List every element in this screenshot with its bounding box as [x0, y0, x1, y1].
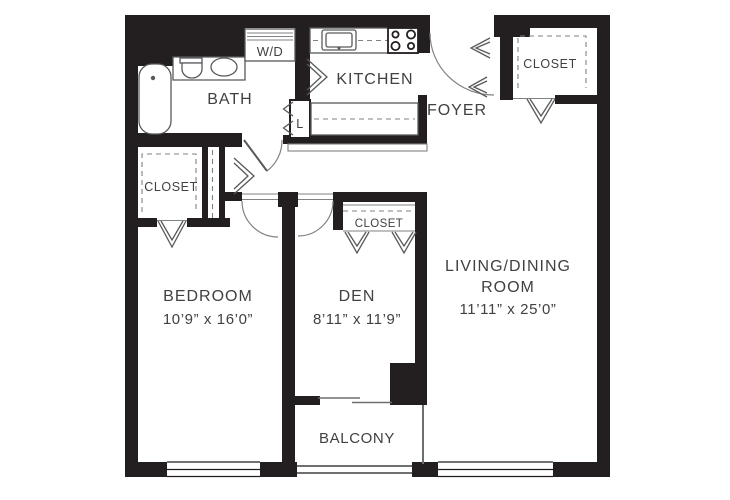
hall-closet-label: CLOSET: [144, 180, 198, 194]
living-dining-label-line1: LIVING/DINING: [445, 258, 571, 275]
linen-label: L: [296, 117, 304, 131]
kitchen-label: KITCHEN: [336, 71, 413, 88]
den-dimensions: 8’11” x 11’9”: [313, 311, 401, 328]
foyer-label: FOYER: [427, 102, 487, 119]
living-room-window: [438, 461, 553, 477]
balcony-label: BALCONY: [319, 430, 395, 447]
living-dining-label-line2: ROOM: [481, 279, 535, 296]
floor-plan: BATH W/D L KITCHEN FOYER CLOSET CLOSET C…: [0, 0, 730, 500]
washer-dryer-label: W/D: [257, 44, 283, 59]
bath-label: BATH: [207, 91, 252, 108]
bathtub-icon: [139, 64, 171, 134]
living-dining-dimensions: 11’11” x 25’0”: [459, 301, 556, 318]
stove-icon: [388, 28, 418, 53]
den-closet-label: CLOSET: [355, 218, 403, 230]
bedroom-dimensions: 10’9” x 16’0”: [163, 311, 253, 328]
kitchen-sink-icon: [322, 30, 356, 50]
floor-plan-drawing: BATH W/D L KITCHEN FOYER CLOSET CLOSET C…: [0, 0, 730, 500]
bedroom-label: BEDROOM: [163, 288, 253, 305]
foyer-closet-label: CLOSET: [523, 57, 577, 71]
den-label: DEN: [339, 288, 376, 305]
balcony-sliding-door: [318, 398, 392, 403]
bathroom-sink-icon: [211, 58, 237, 76]
windows: [167, 461, 553, 477]
bedroom-window: [167, 461, 260, 477]
